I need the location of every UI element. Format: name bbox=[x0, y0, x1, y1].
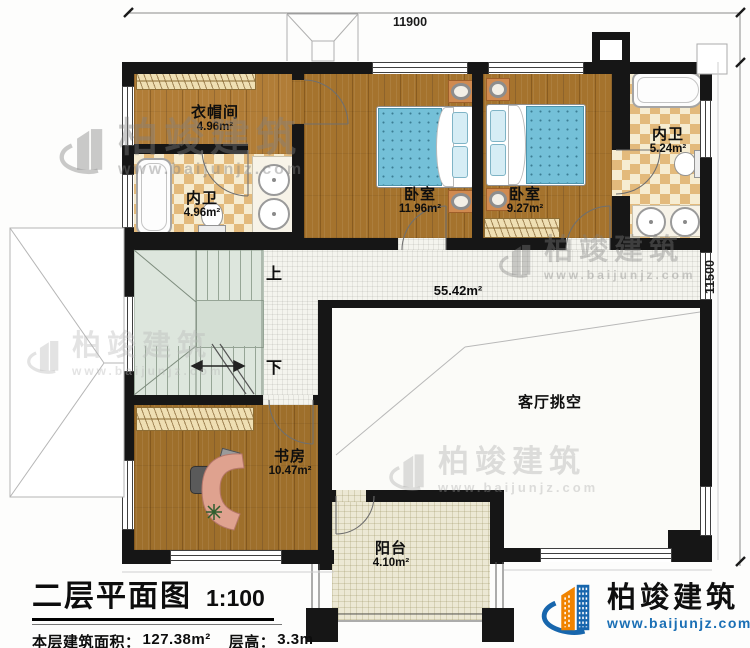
window-cloakroom-left bbox=[122, 86, 134, 146]
stairs-lower-treads bbox=[134, 346, 262, 395]
brand-website: www.baijunjz.com bbox=[607, 615, 750, 631]
dimension-top: 11900 bbox=[378, 15, 442, 29]
label-void: 客厅挑空 bbox=[490, 394, 610, 411]
floor-area-label: 本层建筑面积： bbox=[32, 631, 141, 648]
room-name: 内卫 bbox=[612, 126, 724, 143]
pillow-bed1-b bbox=[452, 146, 468, 178]
floor-height-value: 3.3m bbox=[277, 631, 313, 648]
label-hall-area: 55.42m² bbox=[408, 284, 508, 299]
pillow-bed2-b bbox=[490, 144, 506, 176]
wardrobe-study bbox=[136, 407, 254, 431]
room-name: 客厅挑空 bbox=[490, 394, 610, 411]
window-void-bottom bbox=[540, 548, 672, 562]
label-bath2: 内卫 5.24m² bbox=[612, 126, 724, 156]
room-name: 内卫 bbox=[142, 190, 262, 207]
window-void-right bbox=[700, 486, 712, 536]
dimension-right: 11500 bbox=[703, 245, 717, 309]
door-opening-bedroom2 bbox=[566, 238, 610, 250]
label-study: 书房 10.47m² bbox=[240, 448, 340, 478]
room-area: 4.96m² bbox=[142, 207, 262, 220]
label-cloakroom: 衣帽间 4.96m² bbox=[150, 104, 280, 134]
floor-plan-canvas: 衣帽间 4.96m² 内卫 4.96m² 卧室 11.96m² 卧室 9.27m… bbox=[0, 0, 750, 648]
balcony-pillar-right bbox=[482, 608, 514, 642]
floor-height-label: 层高： bbox=[229, 631, 276, 648]
room-area: 4.10m² bbox=[348, 557, 434, 570]
window-study-left bbox=[122, 460, 134, 530]
nightstand-bed2-top bbox=[486, 78, 510, 101]
floor-hallway-south bbox=[262, 302, 318, 395]
window-bath1-left bbox=[122, 174, 134, 228]
wall bbox=[122, 62, 372, 74]
wall bbox=[292, 238, 712, 250]
stairs-upper-treads bbox=[196, 250, 262, 302]
plan-info: 本层建筑面积： 127.38m² 层高： 3.3m bbox=[32, 631, 313, 648]
plan-scale: 1:100 bbox=[206, 585, 265, 612]
door-opening-study bbox=[263, 395, 313, 405]
mattress-bed2 bbox=[526, 106, 584, 184]
pillow-bed2-a bbox=[490, 110, 506, 142]
brand-logo: 柏竣建筑 www.baijunjz.com bbox=[540, 576, 750, 638]
sink-bath2-a bbox=[636, 207, 666, 237]
room-area: 5.24m² bbox=[612, 143, 724, 156]
label-balcony: 阳台 4.10m² bbox=[348, 540, 434, 570]
chair-study bbox=[190, 466, 216, 494]
dormer-outline-top bbox=[287, 14, 358, 61]
sink-bath2-b bbox=[670, 207, 700, 237]
title-underline-thick bbox=[32, 618, 274, 621]
chimney-flue bbox=[600, 40, 622, 60]
label-bedroom2: 卧室 9.27m² bbox=[460, 186, 590, 216]
watermark-logo-icon bbox=[26, 334, 64, 377]
door-opening-cloakroom bbox=[292, 80, 304, 124]
room-name: 卧室 bbox=[460, 186, 590, 203]
brand-logo-icon bbox=[540, 576, 598, 638]
wardrobe-bedroom2 bbox=[484, 218, 560, 238]
sink-bath1-a bbox=[258, 164, 290, 196]
door-opening-bath2 bbox=[612, 150, 630, 196]
wall bbox=[122, 232, 304, 250]
roof-outline-left bbox=[10, 228, 124, 497]
room-name: 书房 bbox=[240, 448, 340, 465]
window-bedroom2-top bbox=[488, 62, 584, 74]
wall bbox=[332, 300, 702, 308]
window-study-bottom bbox=[170, 550, 282, 564]
room-area: 10.47m² bbox=[240, 465, 340, 478]
wall bbox=[490, 490, 504, 564]
room-area: 9.27m² bbox=[460, 203, 590, 216]
floor-area-value: 127.38m² bbox=[143, 631, 211, 648]
wardrobe-cloakroom bbox=[136, 72, 256, 90]
wall bbox=[318, 300, 332, 570]
wall bbox=[122, 144, 248, 154]
bathtub-bath2 bbox=[632, 72, 704, 108]
spacer bbox=[213, 631, 227, 648]
label-stairs-up: 上 bbox=[266, 260, 282, 284]
label-stairs-down: 下 bbox=[266, 354, 282, 378]
window-stairs-left bbox=[122, 296, 134, 372]
brand-logo-text: 柏竣建筑 www.baijunjz.com bbox=[607, 583, 750, 631]
room-name: 阳台 bbox=[348, 540, 434, 557]
nightstand-bed1-top bbox=[448, 80, 474, 103]
brand-name: 柏竣建筑 bbox=[607, 583, 750, 613]
plan-title: 二层平面图 bbox=[32, 571, 192, 615]
title-underline-thin bbox=[32, 624, 282, 625]
door-opening-balcony bbox=[336, 490, 366, 502]
watermark-logo-icon bbox=[58, 120, 110, 178]
sink-bath1-b bbox=[258, 198, 290, 230]
title-block: 二层平面图 1:100 本层建筑面积： 127.38m² 层高： 3.3m bbox=[32, 571, 313, 648]
room-area: 4.96m² bbox=[150, 121, 280, 134]
stairs-landing bbox=[196, 300, 264, 348]
door-opening-bedroom1 bbox=[398, 238, 446, 250]
window-bedroom1-top bbox=[372, 62, 468, 74]
mattress-bed1 bbox=[378, 108, 442, 186]
label-bath1: 内卫 4.96m² bbox=[142, 190, 262, 220]
pillow-bed1-a bbox=[452, 112, 468, 144]
room-name: 衣帽间 bbox=[150, 104, 280, 121]
